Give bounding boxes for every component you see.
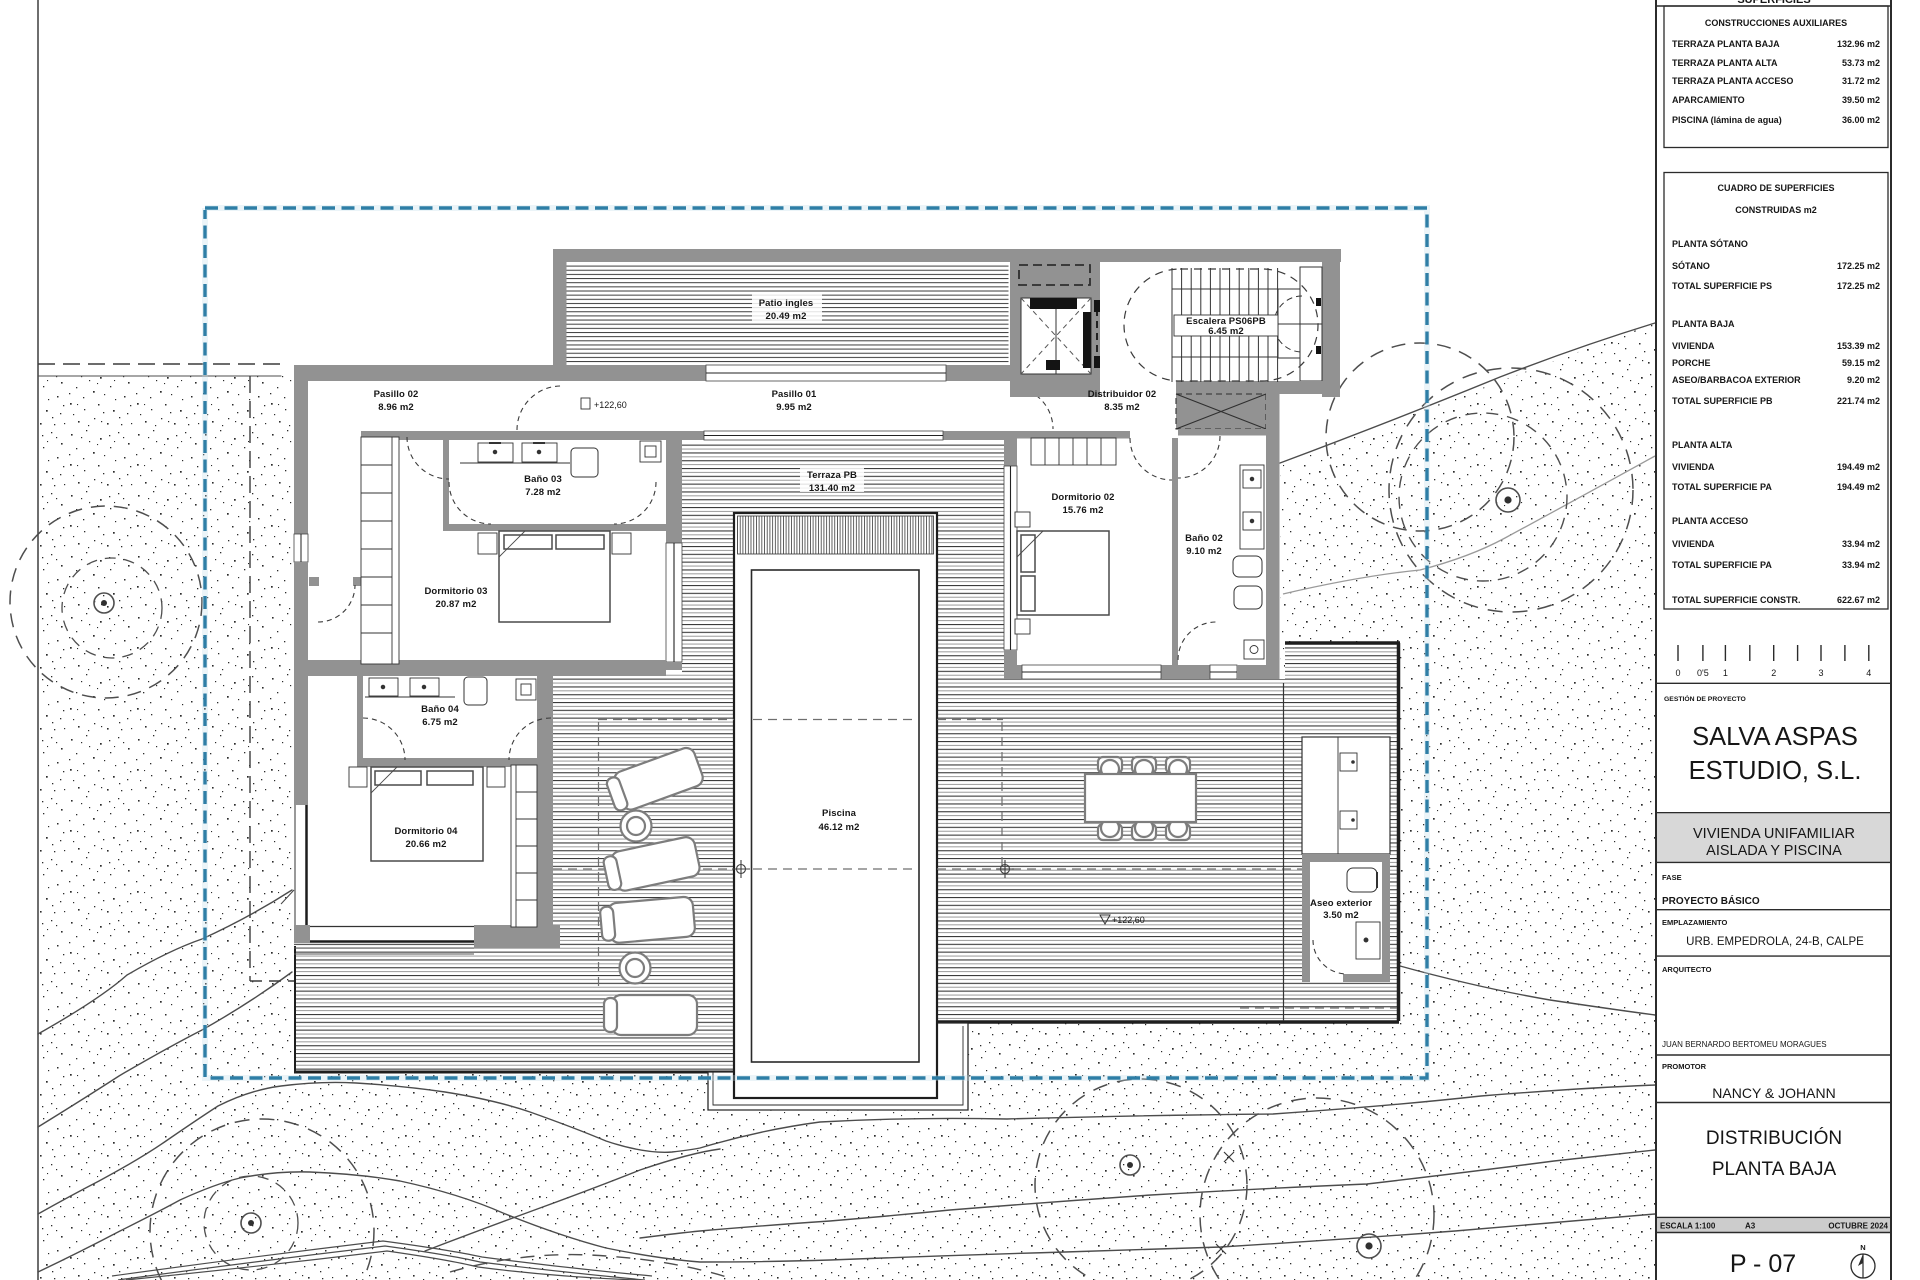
- svg-text:20.66 m2: 20.66 m2: [406, 839, 447, 850]
- svg-text:221.74 m2: 221.74 m2: [1837, 396, 1880, 406]
- svg-text:31.72 m2: 31.72 m2: [1842, 76, 1880, 86]
- svg-text:Pasillo 01: Pasillo 01: [772, 389, 817, 400]
- svg-text:AISLADA Y PISCINA: AISLADA Y PISCINA: [1706, 843, 1842, 859]
- svg-text:TERRAZA PLANTA ACCESO: TERRAZA PLANTA ACCESO: [1672, 76, 1793, 86]
- svg-text:3: 3: [1818, 668, 1823, 678]
- svg-text:PLANTA ACCESO: PLANTA ACCESO: [1672, 516, 1748, 526]
- svg-text:EMPLAZAMIENTO: EMPLAZAMIENTO: [1662, 918, 1727, 927]
- svg-text:CUADRO DE SUPERFICIES: CUADRO DE SUPERFICIES: [1717, 183, 1834, 193]
- svg-text:Patio ingles: Patio ingles: [759, 298, 814, 309]
- svg-text:6.45 m2: 6.45 m2: [1208, 326, 1244, 337]
- svg-text:GESTIÓN DE PROYECTO: GESTIÓN DE PROYECTO: [1664, 694, 1746, 703]
- svg-text:Dormitorio 03: Dormitorio 03: [424, 586, 487, 597]
- svg-text:Baño 03: Baño 03: [524, 474, 562, 485]
- svg-text:Dormitorio 04: Dormitorio 04: [394, 826, 458, 837]
- svg-text:20.87 m2: 20.87 m2: [436, 599, 477, 610]
- svg-text:132.96 m2: 132.96 m2: [1837, 39, 1880, 49]
- svg-text:622.67 m2: 622.67 m2: [1837, 595, 1880, 605]
- svg-text:TERRAZA PLANTA BAJA: TERRAZA PLANTA BAJA: [1672, 39, 1780, 49]
- svg-text:2: 2: [1771, 668, 1776, 678]
- svg-text:VIVIENDA UNIFAMILIAR: VIVIENDA UNIFAMILIAR: [1693, 826, 1855, 842]
- svg-text:4: 4: [1866, 668, 1871, 678]
- svg-text:Piscina: Piscina: [822, 808, 857, 819]
- svg-text:PORCHE: PORCHE: [1672, 358, 1711, 368]
- svg-text:33.94 m2: 33.94 m2: [1842, 539, 1880, 549]
- svg-text:153.39 m2: 153.39 m2: [1837, 341, 1880, 351]
- svg-text:SÓTANO: SÓTANO: [1672, 260, 1710, 271]
- svg-text:APARCAMIENTO: APARCAMIENTO: [1672, 95, 1745, 105]
- svg-text:0'5: 0'5: [1697, 668, 1709, 678]
- svg-text:Dormitorio 02: Dormitorio 02: [1051, 492, 1114, 503]
- svg-text:NANCY & JOHANN: NANCY & JOHANN: [1712, 1085, 1835, 1101]
- svg-text:PLANTA BAJA: PLANTA BAJA: [1712, 1159, 1837, 1180]
- svg-text:53.73 m2: 53.73 m2: [1842, 58, 1880, 68]
- svg-text:+122,60: +122,60: [1112, 915, 1145, 925]
- svg-text:VIVIENDA: VIVIENDA: [1672, 539, 1715, 549]
- svg-text:9.20 m2: 9.20 m2: [1847, 375, 1880, 385]
- svg-text:A3: A3: [1745, 1222, 1756, 1231]
- svg-text:VIVIENDA: VIVIENDA: [1672, 462, 1715, 472]
- svg-text:P - 07: P - 07: [1730, 1250, 1796, 1278]
- svg-text:ESCALA 1:100: ESCALA 1:100: [1660, 1222, 1716, 1231]
- svg-text:3.50 m2: 3.50 m2: [1323, 910, 1359, 921]
- svg-text:1: 1: [1723, 668, 1728, 678]
- svg-text:6.75 m2: 6.75 m2: [422, 717, 458, 728]
- svg-text:TOTAL SUPERFICIE PB: TOTAL SUPERFICIE PB: [1672, 396, 1773, 406]
- svg-text:194.49 m2: 194.49 m2: [1837, 462, 1880, 472]
- svg-text:TOTAL SUPERFICIE PS: TOTAL SUPERFICIE PS: [1672, 281, 1772, 291]
- svg-text:39.50 m2: 39.50 m2: [1842, 95, 1880, 105]
- svg-text:Baño 04: Baño 04: [421, 704, 459, 715]
- svg-text:0: 0: [1675, 668, 1680, 678]
- svg-text:Baño 02: Baño 02: [1185, 533, 1223, 544]
- svg-text:172.25 m2: 172.25 m2: [1837, 261, 1880, 271]
- svg-text:CONSTRUCCIONES AUXILIARES: CONSTRUCCIONES AUXILIARES: [1705, 18, 1847, 28]
- svg-text:PROMOTOR: PROMOTOR: [1662, 1062, 1707, 1071]
- svg-text:FASE: FASE: [1662, 873, 1682, 882]
- svg-text:36.00 m2: 36.00 m2: [1842, 115, 1880, 125]
- svg-text:JUAN BERNARDO BERTOMEU MORAGUE: JUAN BERNARDO BERTOMEU MORAGUES: [1662, 1040, 1827, 1049]
- svg-text:33.94 m2: 33.94 m2: [1842, 560, 1880, 570]
- svg-text:URB. EMPEDROLA, 24-B, CALPE: URB. EMPEDROLA, 24-B, CALPE: [1686, 936, 1864, 948]
- svg-text:N: N: [1860, 1243, 1865, 1252]
- svg-text:9.10 m2: 9.10 m2: [1186, 546, 1222, 557]
- svg-text:15.76 m2: 15.76 m2: [1063, 505, 1104, 516]
- svg-text:ARQUITECTO: ARQUITECTO: [1662, 965, 1712, 974]
- svg-text:8.35 m2: 8.35 m2: [1104, 402, 1140, 413]
- svg-text:ESTUDIO, S.L.: ESTUDIO, S.L.: [1689, 757, 1862, 785]
- svg-text:+122,60: +122,60: [594, 400, 627, 410]
- svg-text:TOTAL SUPERFICIE PA: TOTAL SUPERFICIE PA: [1672, 560, 1772, 570]
- svg-text:194.49 m2: 194.49 m2: [1837, 482, 1880, 492]
- svg-text:7.28 m2: 7.28 m2: [525, 487, 561, 498]
- svg-text:PROYECTO BÁSICO: PROYECTO BÁSICO: [1662, 894, 1760, 907]
- svg-text:SUPERFICIES: SUPERFICIES: [1737, 0, 1810, 6]
- svg-text:PLANTA BAJA: PLANTA BAJA: [1672, 319, 1735, 329]
- svg-text:172.25 m2: 172.25 m2: [1837, 281, 1880, 291]
- svg-text:46.12 m2: 46.12 m2: [819, 822, 860, 833]
- svg-text:ASEO/BARBACOA EXTERIOR: ASEO/BARBACOA EXTERIOR: [1672, 375, 1801, 385]
- svg-text:CONSTRUIDAS m2: CONSTRUIDAS m2: [1735, 205, 1817, 215]
- svg-text:TERRAZA PLANTA ALTA: TERRAZA PLANTA ALTA: [1672, 58, 1778, 68]
- svg-text:20.49 m2: 20.49 m2: [766, 311, 807, 322]
- svg-text:VIVIENDA: VIVIENDA: [1672, 341, 1715, 351]
- svg-text:131.40 m2: 131.40 m2: [809, 483, 855, 494]
- svg-text:PLANTA ALTA: PLANTA ALTA: [1672, 440, 1733, 450]
- svg-text:Pasillo 02: Pasillo 02: [374, 389, 419, 400]
- svg-text:PLANTA SÓTANO: PLANTA SÓTANO: [1672, 238, 1748, 249]
- svg-text:PISCINA (lámina de agua): PISCINA (lámina de agua): [1672, 115, 1782, 125]
- svg-text:TOTAL SUPERFICIE PA: TOTAL SUPERFICIE PA: [1672, 482, 1772, 492]
- svg-text:59.15 m2: 59.15 m2: [1842, 358, 1880, 368]
- svg-text:SALVA ASPAS: SALVA ASPAS: [1692, 723, 1858, 751]
- svg-text:DISTRIBUCIÓN: DISTRIBUCIÓN: [1706, 1127, 1842, 1149]
- svg-text:OCTUBRE 2024: OCTUBRE 2024: [1828, 1222, 1888, 1231]
- svg-text:Aseo exterior: Aseo exterior: [1310, 898, 1372, 909]
- svg-text:8.96 m2: 8.96 m2: [378, 402, 414, 413]
- svg-text:Terraza PB: Terraza PB: [807, 470, 857, 481]
- svg-text:TOTAL SUPERFICIE CONSTR.: TOTAL SUPERFICIE CONSTR.: [1672, 595, 1801, 605]
- svg-text:Distribuidor 02: Distribuidor 02: [1088, 389, 1157, 400]
- svg-text:9.95 m2: 9.95 m2: [776, 402, 812, 413]
